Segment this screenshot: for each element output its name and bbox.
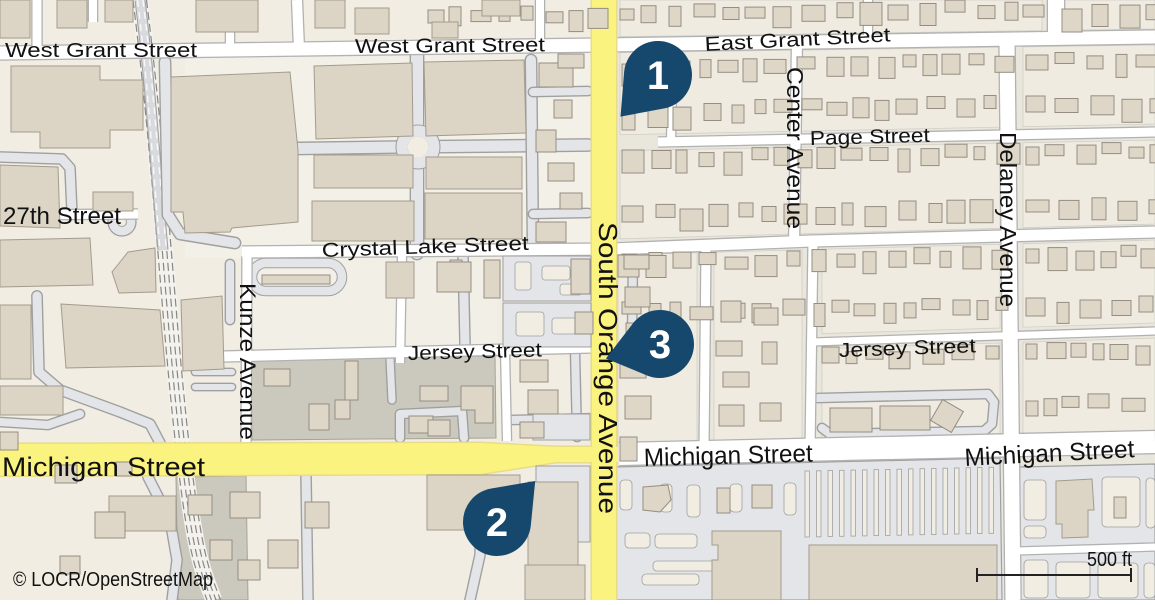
svg-text:Jersey Street: Jersey Street — [408, 339, 543, 365]
svg-text:West Grant Street: West Grant Street — [355, 34, 546, 58]
svg-text:3: 3 — [649, 323, 671, 367]
svg-text:West Grant Street: West Grant Street — [5, 40, 198, 62]
svg-text:500 ft: 500 ft — [1087, 549, 1132, 571]
svg-text:Michigan Street: Michigan Street — [643, 440, 813, 472]
svg-text:Kunze Avenue: Kunze Avenue — [235, 283, 260, 440]
svg-text:2: 2 — [486, 501, 508, 545]
svg-text:© LOCR/OpenStreetMap: © LOCR/OpenStreetMap — [13, 569, 213, 591]
svg-text:Center Avenue: Center Avenue — [782, 67, 808, 229]
svg-text:Delaney Avenue: Delaney Avenue — [995, 132, 1021, 307]
svg-text:Page Street: Page Street — [810, 125, 931, 150]
svg-text:1: 1 — [647, 54, 669, 98]
svg-text:Michigan Street: Michigan Street — [2, 452, 206, 482]
svg-text:South Orange Avenue: South Orange Avenue — [593, 222, 623, 514]
svg-text:27th Street: 27th Street — [3, 203, 121, 230]
